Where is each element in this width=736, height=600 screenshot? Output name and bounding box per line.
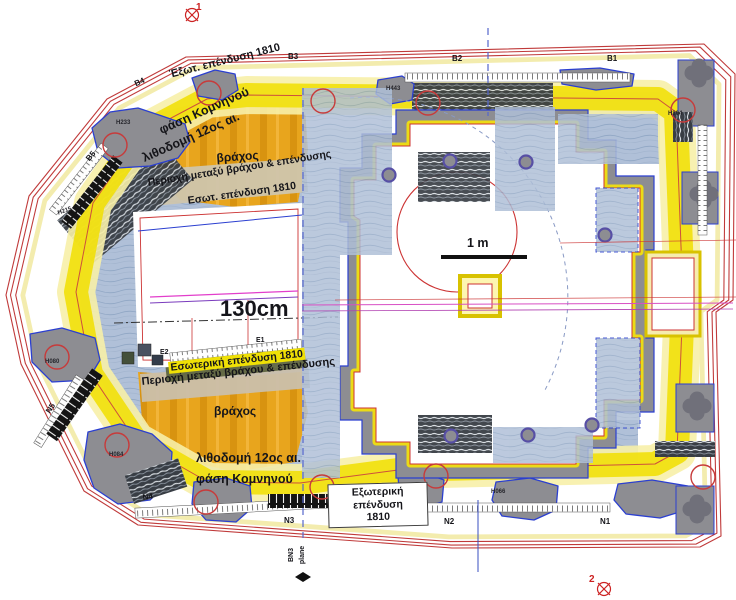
grid-label-e1: E1 — [256, 337, 265, 344]
grid-label-n1: N1 — [600, 517, 610, 526]
plan-canvas: 1 2 B4 B5 B3 B2 B1 N5 N4 N3 N2 N1 E2 E1 … — [0, 0, 736, 600]
survey-point-h066: H066 — [491, 489, 505, 495]
outer-cladding-callout-line2: 1810 — [330, 510, 426, 525]
grid-label-n3: N3 — [284, 516, 294, 525]
outer-cladding-callout-line1: Εξωτερική επένδυση — [330, 485, 427, 513]
east-apse — [646, 252, 700, 336]
bn3-plane-label: BN3 plane — [286, 537, 316, 573]
dimension-label: 130cm — [220, 296, 289, 322]
grid-label-b1: B1 — [607, 54, 617, 63]
grid-label-b3: B3 — [288, 52, 298, 61]
survey-point-h443: H443 — [386, 86, 400, 92]
scale-bar — [441, 255, 527, 259]
bn3-plane-line1: BN3 — [286, 537, 297, 573]
grid-label-b2: B2 — [452, 54, 462, 63]
annotation-bottom-rock: βράχος — [214, 404, 256, 418]
survey-point-h084: H084 — [109, 452, 123, 458]
survey-point-h233: H233 — [116, 120, 130, 126]
scale-bar-label: 1 m — [467, 236, 489, 250]
survey-point-h080: H080 — [45, 359, 59, 365]
bn3-plane-line2: plane — [297, 537, 308, 573]
grid-label-n4: N4 — [142, 492, 153, 502]
annotation-bottom-masonry: λιθοδομή 12ος αι. — [196, 451, 301, 465]
grid-label-e2: E2 — [160, 349, 169, 356]
grid-label-n2: N2 — [444, 517, 454, 526]
benchmark-1-label: 1 — [196, 2, 202, 13]
outer-cladding-callout: Εξωτερική επένδυση 1810 — [327, 482, 428, 528]
annotation-bottom-phase: φάση Κομνηνού — [196, 472, 293, 486]
survey-point-h304: H304 — [668, 111, 682, 117]
benchmark-2-label: 2 — [589, 574, 595, 585]
